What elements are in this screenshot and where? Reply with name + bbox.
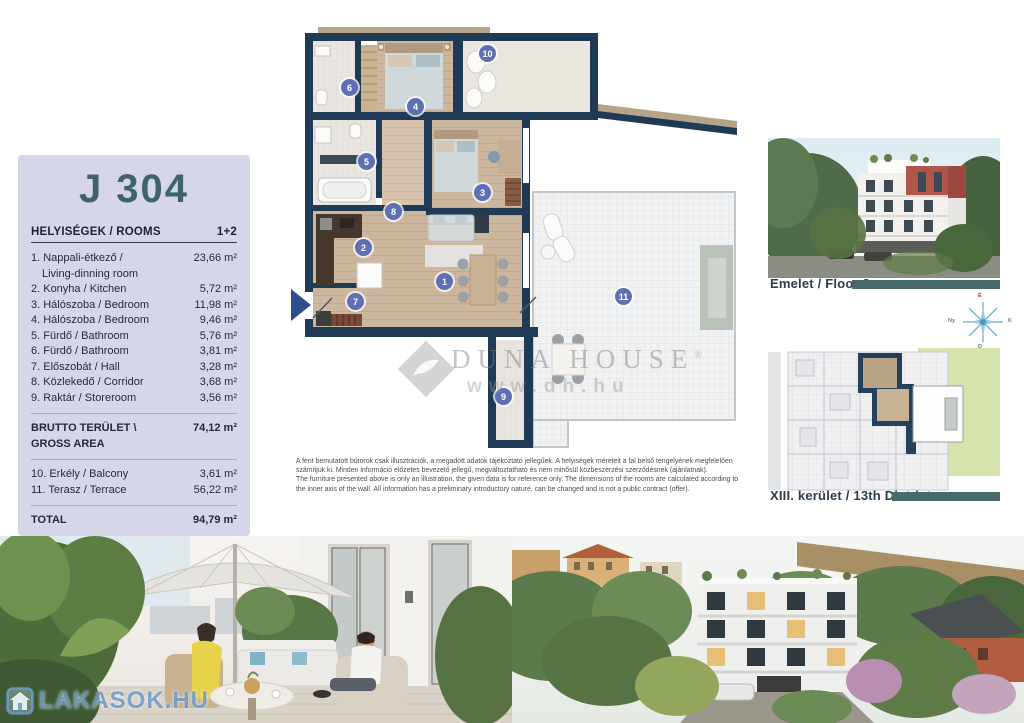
building-photo (768, 138, 1000, 278)
disclaimer-hu: A fent bemutatott bútorok csak illusztrá… (296, 457, 742, 475)
room-row: 5. Fürdő / Bathroom5,76 m² (31, 329, 237, 345)
total-label: TOTAL (31, 513, 67, 529)
room-row: 4. Hálószoba / Bedroom9,46 m² (31, 313, 237, 329)
room-area: 3,61 m² (200, 467, 237, 483)
desk-chair (488, 151, 500, 163)
room-label: 4. Hálószoba / Bedroom (31, 313, 149, 329)
room-area: 5,76 m² (200, 329, 237, 345)
room-marker-4: 4 (407, 98, 424, 115)
room-label: 10. Erkély / Balcony (31, 467, 128, 483)
total-row: TOTAL 94,79 m² (31, 513, 237, 529)
room-marker-9: 9 (495, 388, 512, 405)
dining-set (458, 255, 509, 305)
room-marker-1: 1 (436, 273, 453, 290)
room-area: 3,56 m² (200, 391, 237, 407)
divider (31, 413, 237, 414)
room-row: 6. Fürdő / Bathroom3,81 m² (31, 344, 237, 360)
gross-label-line2: GROSS AREA (31, 438, 105, 450)
room-area: 56,22 m² (194, 483, 237, 499)
sofa (428, 215, 474, 241)
room-label-line2: Living-dinning room (31, 268, 138, 280)
room-marker-7: 7 (347, 293, 364, 310)
room-area: 9,46 m² (200, 313, 237, 329)
compass-west-label: Ny (948, 318, 955, 324)
gross-area-row: BRUTTO TERÜLET \ GROSS AREA 74,12 m² (31, 421, 237, 452)
total-value: 94,79 m² (193, 513, 237, 529)
desk (498, 140, 520, 174)
unit-info-panel: J 304 HELYISÉGEK / ROOMS 1+2 1. Nappali-… (18, 155, 250, 536)
tv-console (473, 213, 489, 233)
room-row: 8. Közlekedő / Corridor3,68 m² (31, 375, 237, 391)
corridor-floor (382, 120, 424, 208)
rooms-header-label: HELYISÉGEK / ROOMS (31, 226, 161, 238)
divider (31, 505, 237, 506)
room-area: 5,72 m² (200, 282, 237, 298)
room-area: 23,66 m² (194, 251, 237, 282)
room-marker-2: 2 (355, 239, 372, 256)
building-aerial-photo (512, 536, 1024, 723)
floor-caption-bar (852, 280, 1000, 289)
site-plan (760, 346, 1024, 492)
room-marker-8: 8 (385, 203, 402, 220)
room-row: 3. Hálószoba / Bedroom11,98 m² (31, 298, 237, 314)
rooms-type-badge: 1+2 (217, 226, 237, 238)
gross-label: BRUTTO TERÜLET \ (31, 422, 137, 434)
compass-north-label: É (978, 293, 982, 299)
room-label: 6. Fürdő / Bathroom (31, 344, 129, 360)
divider (31, 459, 237, 460)
room-label: 11. Terasz / Terrace (31, 483, 126, 499)
terrace-photo (0, 536, 512, 723)
room-row: 11. Terasz / Terrace56,22 m² (31, 483, 237, 499)
floor-plan (285, 10, 745, 458)
room-row: 2. Konyha / Kitchen5,72 m² (31, 282, 237, 298)
unit-id: J 304 (31, 167, 237, 212)
room-marker-11: 11 (615, 288, 632, 305)
room-marker-10: 10 (479, 45, 496, 62)
room-label: 2. Konyha / Kitchen (31, 282, 126, 298)
rooms-table-header: HELYISÉGEK / ROOMS 1+2 (31, 226, 237, 238)
bookshelf (505, 178, 521, 206)
district-caption-bar (892, 492, 1000, 501)
wardrobe (361, 45, 377, 112)
terrace-annex (533, 420, 568, 447)
room-row: 7. Előszobát / Hall3,28 m² (31, 360, 237, 376)
room-marker-6: 6 (341, 79, 358, 96)
room-label: 9. Raktár / Storeroom (31, 391, 136, 407)
room-row: 1. Nappali-étkező / Living-dinning room … (31, 251, 237, 282)
compass-east-label: K (1008, 318, 1012, 324)
room-area: 3,68 m² (200, 375, 237, 391)
room-label: 1. Nappali-étkező / (31, 252, 123, 264)
bed-3 (434, 130, 478, 192)
room-label: 5. Fürdő / Bathroom (31, 329, 129, 345)
facade-strip (318, 27, 490, 34)
street-strip (768, 352, 781, 490)
room-row: 9. Raktár / Storeroom3,56 m² (31, 391, 237, 407)
main-building (697, 569, 857, 692)
gross-area-value: 74,12 m² (193, 421, 237, 452)
room-area: 3,28 m² (200, 360, 237, 376)
room-row: 10. Erkély / Balcony3,61 m² (31, 467, 237, 483)
disclaimer: A fent bemutatott bútorok csak illusztrá… (296, 457, 742, 494)
header-rule (31, 242, 237, 243)
room-area: 11,98 m² (194, 298, 237, 314)
room-label: 8. Közlekedő / Corridor (31, 375, 144, 391)
room-marker-3: 3 (474, 184, 491, 201)
room-label: 3. Hálószoba / Bedroom (31, 298, 149, 314)
room-marker-5: 5 (358, 153, 375, 170)
room-label: 7. Előszobát / Hall (31, 360, 120, 376)
room-area: 3,81 m² (200, 344, 237, 360)
listing-sheet: J 304 HELYISÉGEK / ROOMS 1+2 1. Nappali-… (0, 0, 1024, 723)
compass-icon (961, 300, 1005, 344)
disclaimer-en: The furniture presented above is only an… (296, 475, 742, 493)
